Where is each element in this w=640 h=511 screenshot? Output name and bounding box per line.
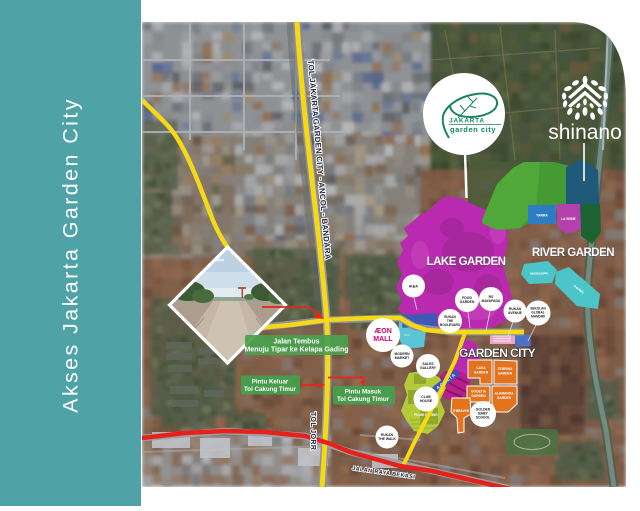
svg-text:ZEBRINA: ZEBRINA	[498, 367, 513, 371]
svg-text:HOUSE: HOUSE	[420, 399, 433, 403]
svg-text:IKEA: IKEA	[409, 285, 418, 289]
svg-text:GARDEN CITY: GARDEN CITY	[459, 346, 536, 360]
svg-text:shinano: shinano	[548, 121, 622, 144]
svg-text:GARDEN: GARDEN	[498, 372, 513, 376]
svg-text:Pintu Masuk: Pintu Masuk	[345, 389, 382, 396]
svg-text:Tol Cakung Timur: Tol Cakung Timur	[244, 386, 297, 393]
svg-text:ÆON: ÆON	[374, 328, 392, 335]
svg-text:SCHOOL: SCHOOL	[476, 416, 491, 420]
svg-text:JAKARTA: JAKARTA	[449, 118, 485, 125]
svg-text:MALL: MALL	[373, 336, 393, 343]
svg-text:THE WALK: THE WALK	[378, 437, 396, 441]
svg-text:Menuju Tipar ke Kelapa Gading: Menuju Tipar ke Kelapa Gading	[244, 347, 348, 354]
svg-text:MARKET: MARKET	[395, 356, 410, 360]
svg-text:AVENUE: AVENUE	[508, 311, 523, 315]
svg-text:GARDEN: GARDEN	[474, 371, 489, 375]
svg-text:Pintu Keluar: Pintu Keluar	[252, 379, 289, 386]
svg-text:Tol Cakung Timur: Tol Cakung Timur	[337, 396, 390, 403]
svg-text:MANDIRI: MANDIRI	[531, 315, 545, 319]
svg-text:BOULEVARD: BOULEVARD	[440, 323, 461, 327]
svg-text:MISSISSIPPI: MISSISSIPPI	[530, 272, 548, 276]
svg-text:GARDEN: GARDEN	[460, 300, 475, 304]
svg-text:TOL JORR: TOL JORR	[309, 412, 316, 450]
svg-text:garden city: garden city	[450, 125, 496, 134]
svg-text:GALLERY: GALLERY	[420, 366, 437, 370]
svg-text:LA SEINE: LA SEINE	[561, 217, 576, 221]
svg-text:CASA: CASA	[476, 366, 486, 370]
svg-text:ALAMANDA: ALAMANDA	[494, 392, 514, 396]
svg-text:LAKE GARDEN: LAKE GARDEN	[427, 256, 506, 268]
svg-text:S'BRAVEN: S'BRAVEN	[453, 409, 470, 413]
svg-text:GODETIA: GODETIA	[471, 390, 487, 394]
svg-text:GARDEN: GARDEN	[497, 396, 512, 400]
svg-text:MAYAPADA: MAYAPADA	[482, 299, 501, 303]
svg-text:Jalan Tembus: Jalan Tembus	[273, 339, 319, 346]
svg-text:RIVER GARDEN: RIVER GARDEN	[532, 247, 614, 259]
svg-text:GARDEN: GARDEN	[471, 394, 486, 398]
svg-text:YARRA: YARRA	[536, 214, 548, 218]
